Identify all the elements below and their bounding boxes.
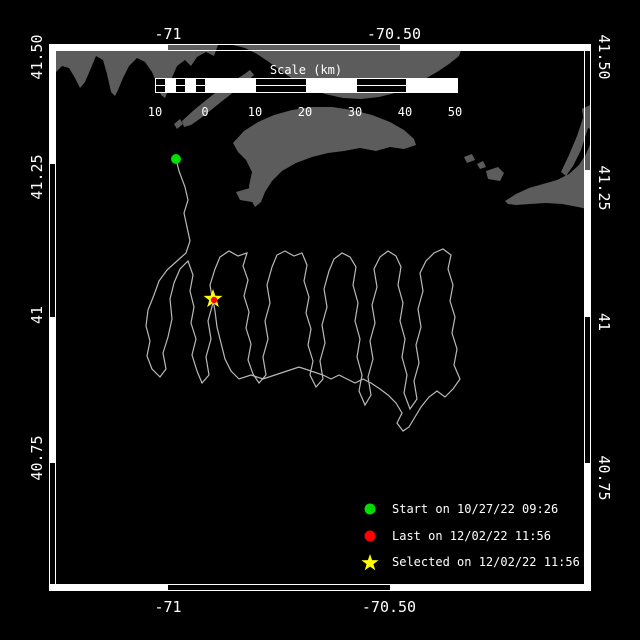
- scalebar-tick-label: 30: [348, 105, 362, 119]
- lat-label-right-2: 41.25: [595, 165, 613, 210]
- start-point-marker: [171, 154, 181, 164]
- scalebar-tick-label: 0: [201, 105, 208, 119]
- legend-label-last: Last on 12/02/22 11:56: [392, 529, 551, 543]
- scalebar-title: Scale (km): [270, 63, 342, 77]
- lat-label-left-3: 41: [28, 306, 46, 324]
- lon-label-top-2: -70.50: [367, 25, 421, 43]
- legend-item-selected: Selected on 12/02/22 11:56: [360, 552, 580, 572]
- selected-marker-icon: [360, 552, 380, 572]
- lat-label-left-1: 41.50: [28, 34, 46, 79]
- scalebar-tick-label: 10: [248, 105, 262, 119]
- scalebar-tick-label: 10: [148, 105, 162, 119]
- legend-item-start: Start on 10/27/22 09:26: [360, 499, 558, 519]
- legend-label-start: Start on 10/27/22 09:26: [392, 502, 558, 516]
- scalebar-tick-label: 40: [398, 105, 412, 119]
- scalebar-tick-label: 50: [448, 105, 462, 119]
- lat-label-left-4: 40.75: [28, 435, 46, 480]
- lon-label-bottom-1: -71: [154, 598, 181, 616]
- lon-label-bottom-2: -70.50: [362, 598, 416, 616]
- scalebar-tick-label: 20: [298, 105, 312, 119]
- last-marker-icon: [360, 526, 380, 546]
- legend-item-last: Last on 12/02/22 11:56: [360, 526, 551, 546]
- last-point-marker: [211, 297, 217, 303]
- legend-label-selected: Selected on 12/02/22 11:56: [392, 555, 580, 569]
- track-path: [146, 159, 460, 431]
- lat-label-left-2: 41.25: [28, 154, 46, 199]
- lat-label-right-3: 41: [595, 313, 613, 331]
- track-markers: [171, 154, 223, 307]
- lon-label-top-1: -71: [154, 25, 181, 43]
- start-marker-icon: [360, 499, 380, 519]
- lat-label-right-1: 41.50: [595, 34, 613, 79]
- scalebar: [155, 78, 458, 93]
- lat-label-right-4: 40.75: [595, 455, 613, 500]
- tracking-map-screen: -71 -70.50 -71 -70.50 41.50 41.25 41 40.…: [0, 0, 640, 640]
